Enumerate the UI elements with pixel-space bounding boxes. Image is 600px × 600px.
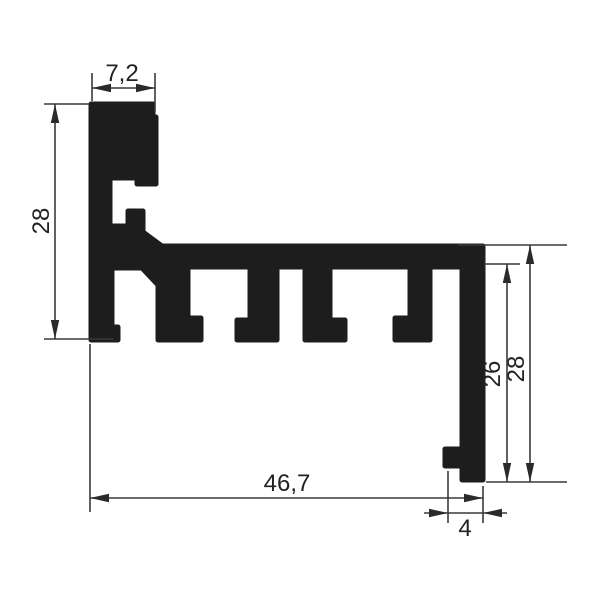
arrowhead-down [503, 463, 511, 482]
arrowhead-down [526, 463, 534, 482]
dimension-label-left-height: 28 [28, 208, 55, 235]
dimension-label-bottom-width: 46,7 [264, 470, 311, 497]
arrowhead-right [464, 494, 483, 502]
arrowhead-up [503, 264, 511, 283]
arrowhead-up [51, 104, 59, 123]
arrowhead-right [136, 84, 155, 92]
dimension-label-right-inner-height: 26 [479, 361, 506, 388]
arrowhead-up [526, 245, 534, 264]
dimension-label-top-width: 7,2 [105, 60, 138, 87]
dimension-bottom-width: 46,7 [90, 344, 483, 523]
arrowhead-down [51, 320, 59, 339]
arrowhead-left [483, 509, 502, 517]
profile-drawing: 7,2 28 28 26 [0, 0, 600, 600]
arrowhead-left [90, 494, 109, 502]
arrowhead-right [429, 509, 448, 517]
profile-outline [91, 104, 483, 480]
technical-drawing-canvas: 7,2 28 28 26 [0, 0, 600, 600]
profile-shape [91, 104, 483, 480]
dimension-label-leg-width: 4 [458, 515, 471, 542]
